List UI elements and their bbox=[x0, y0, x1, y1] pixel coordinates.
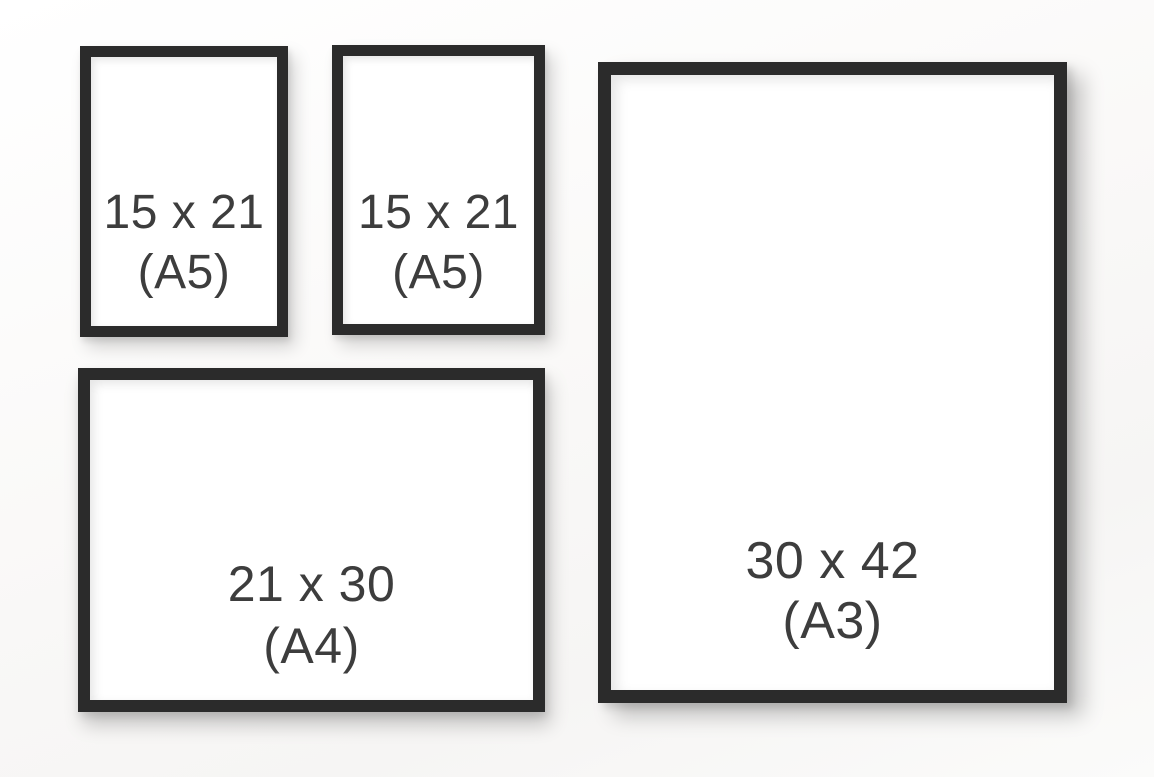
frame-size-diagram: 15 x 21 (A5) 15 x 21 (A5) 21 x 30 (A4) 3… bbox=[0, 0, 1154, 777]
frame-a5-top-right-label: 15 x 21 (A5) bbox=[343, 183, 534, 303]
format-text: (A4) bbox=[90, 615, 533, 677]
frame-a5-top-left-label: 15 x 21 (A5) bbox=[91, 183, 277, 303]
format-text: (A5) bbox=[91, 243, 277, 303]
size-text: 15 x 21 bbox=[91, 183, 277, 243]
size-text: 21 x 30 bbox=[90, 553, 533, 615]
frame-a5-top-right: 15 x 21 (A5) bbox=[332, 45, 545, 335]
format-text: (A5) bbox=[343, 243, 534, 303]
frame-a5-top-left: 15 x 21 (A5) bbox=[80, 46, 288, 337]
size-text: 15 x 21 bbox=[343, 183, 534, 243]
frame-a4-bottom-left-label: 21 x 30 (A4) bbox=[90, 553, 533, 677]
size-text: 30 x 42 bbox=[611, 531, 1054, 591]
frame-a3-right: 30 x 42 (A3) bbox=[598, 62, 1067, 703]
frame-a3-right-label: 30 x 42 (A3) bbox=[611, 531, 1054, 651]
frame-a4-bottom-left: 21 x 30 (A4) bbox=[78, 368, 545, 712]
format-text: (A3) bbox=[611, 591, 1054, 651]
